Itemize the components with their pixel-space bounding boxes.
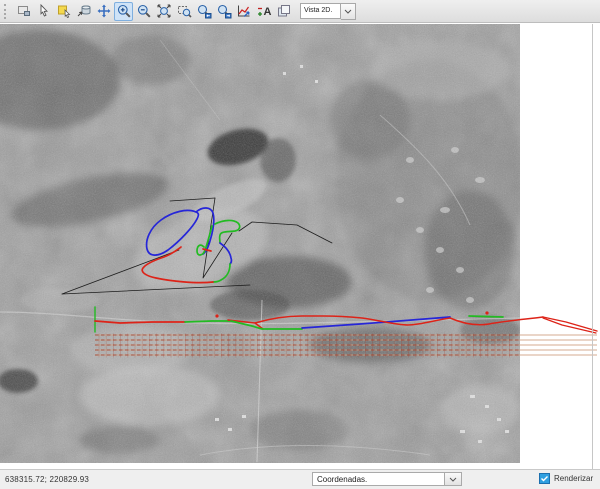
coordinate-readout: 638315.72; 220829.93 (5, 475, 89, 484)
zoom-out-button[interactable] (134, 2, 153, 21)
zoom-in-icon (116, 3, 132, 19)
select-area-button[interactable] (54, 2, 73, 21)
toolbar-grip[interactable] (4, 4, 10, 19)
render-label: Renderizar (554, 474, 593, 483)
app-window: A Vista 2D. (0, 0, 600, 489)
text-size-icon: A (256, 3, 272, 19)
select-button[interactable] (34, 2, 53, 21)
aerial-photo (0, 24, 520, 463)
zoom-next-icon (216, 3, 232, 19)
pan-button[interactable] (94, 2, 113, 21)
mode-selector[interactable]: Coordenadas. (312, 472, 462, 486)
status-bar: 638315.72; 220829.93 Coordenadas. Render… (0, 469, 600, 489)
select-area-icon (56, 3, 72, 19)
render-checkbox[interactable] (539, 473, 550, 484)
copy-view-button[interactable] (274, 2, 293, 21)
canvas-right-border (592, 24, 593, 469)
zoom-in-button[interactable] (114, 2, 133, 21)
render-toggle-group: Renderizar (539, 473, 593, 484)
check-icon (540, 474, 549, 483)
view-selector-value: Vista 2D. (300, 3, 341, 19)
clear-data-icon (76, 3, 92, 19)
profile-chart-button[interactable] (234, 2, 253, 21)
view-selector[interactable]: Vista 2D. (300, 4, 356, 19)
svg-text:A: A (263, 6, 271, 18)
pan-icon (96, 3, 112, 19)
copy-view-icon (276, 3, 292, 19)
zoom-out-icon (136, 3, 152, 19)
new-view-icon (16, 3, 32, 19)
chevron-down-icon[interactable] (341, 3, 356, 20)
select-cursor-icon (36, 3, 52, 19)
text-size-button[interactable]: A (254, 2, 273, 21)
zoom-next-button[interactable] (214, 2, 233, 21)
chevron-down-icon[interactable] (445, 472, 462, 486)
main-toolbar: A Vista 2D. (0, 0, 600, 23)
zoom-previous-icon (196, 3, 212, 19)
clear-data-button[interactable] (74, 2, 93, 21)
map-canvas[interactable] (0, 24, 600, 469)
zoom-previous-button[interactable] (194, 2, 213, 21)
zoom-extent-icon (156, 3, 172, 19)
zoom-selection-icon (176, 3, 192, 19)
profile-chart-icon (236, 3, 252, 19)
zoom-extent-button[interactable] (154, 2, 173, 21)
mode-selector-value: Coordenadas. (312, 472, 445, 486)
zoom-selection-button[interactable] (174, 2, 193, 21)
new-view-button[interactable] (14, 2, 33, 21)
